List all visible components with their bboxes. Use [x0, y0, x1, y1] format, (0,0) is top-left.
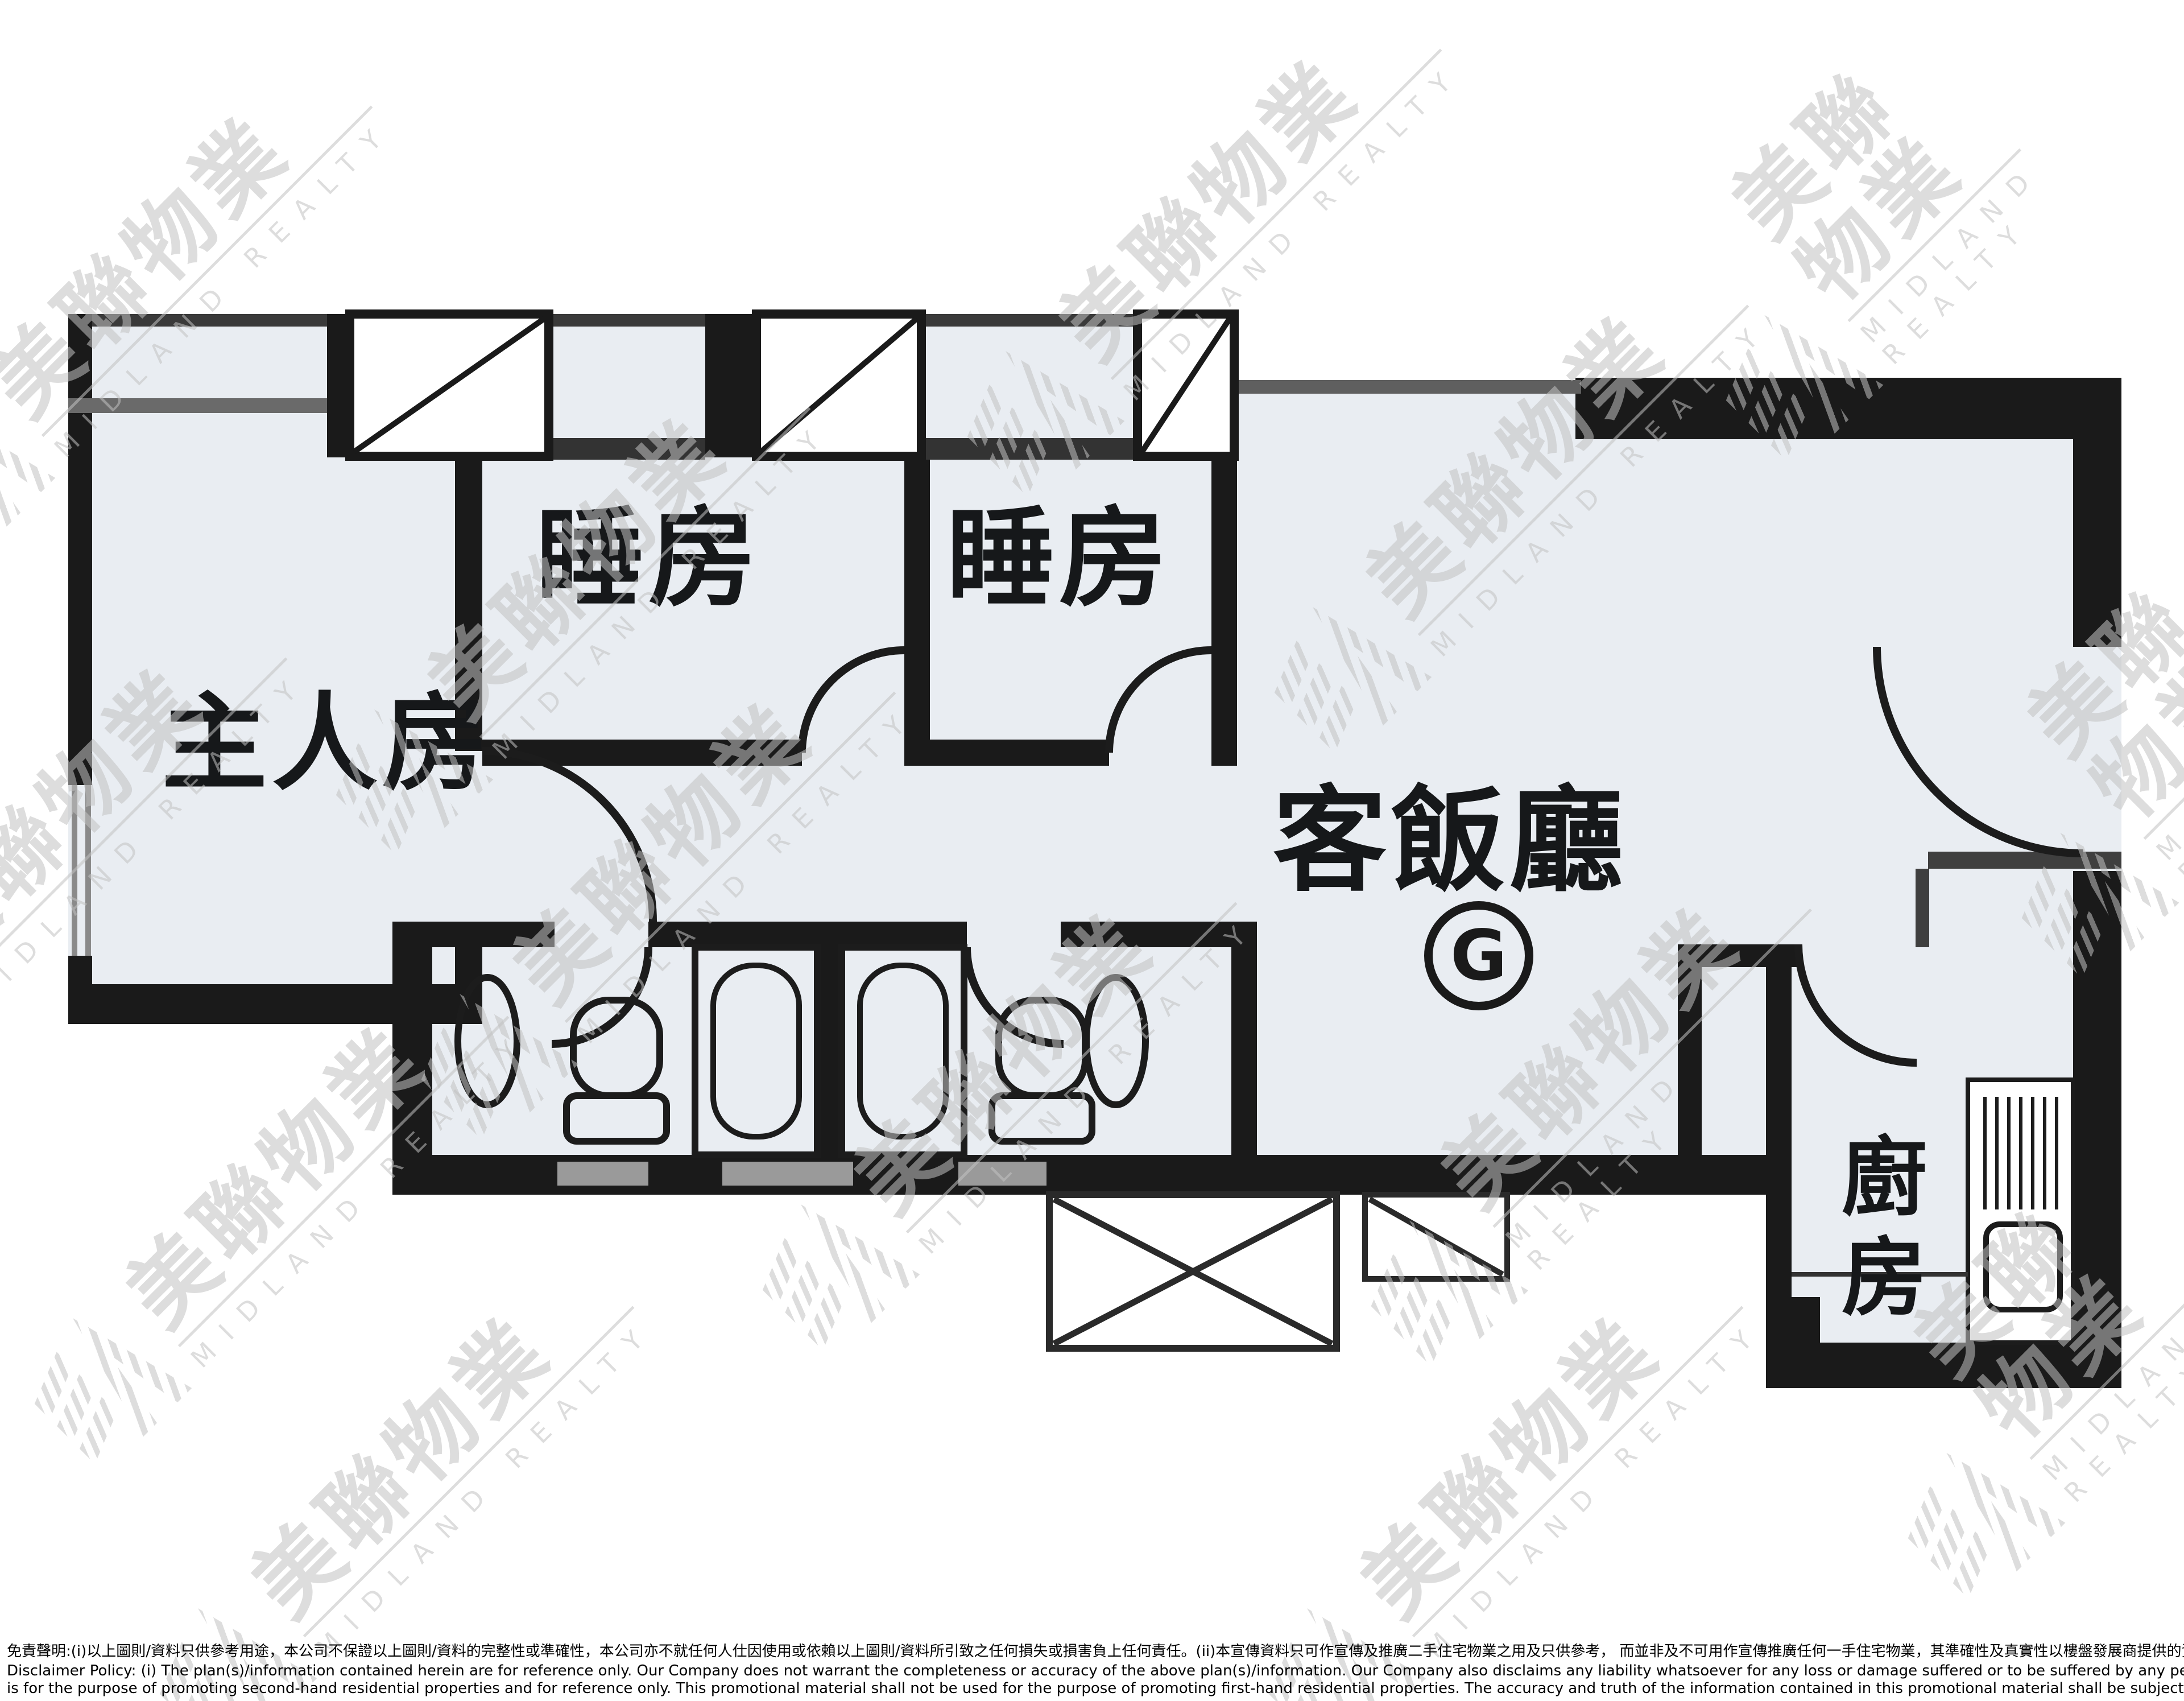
- wall-bath-top-c: [1061, 922, 1257, 947]
- wall-bath-top-b: [648, 922, 967, 947]
- wall-left-upper: [68, 314, 92, 785]
- wall-bath-top-a: [392, 922, 555, 947]
- wall-kitchen-door-stub: [1916, 869, 1929, 947]
- wall-bed2-bottom: [930, 740, 1109, 766]
- kitchen-sink: [1986, 1224, 2060, 1310]
- wall-kitchen-right: [2073, 871, 2121, 1388]
- external-platforms: [1049, 1195, 1507, 1348]
- master-side-window-line-a: [72, 785, 77, 956]
- wall-bath-right: [1231, 922, 1257, 1195]
- floor-plan-drawing: [0, 0, 2184, 1701]
- unit-marker-circle: G: [1424, 901, 1533, 1010]
- disclaimer-line-english-2: is for the purpose of promoting second-h…: [7, 1681, 2184, 1696]
- label-bedroom-2: 睡房: [946, 471, 1172, 627]
- kitchen-drainboard-hatch: [1985, 1097, 2057, 1209]
- disclaimer-line-chinese: 免責聲明:(i)以上圖則/資料只供參考用途，本公司不保證以上圖則/資料的完整性或…: [7, 1644, 2184, 1659]
- disclaimer-line-english-1: Disclaimer Policy: (i) The plan(s)/infor…: [7, 1663, 2184, 1678]
- wall-right-upper: [2073, 378, 2121, 647]
- label-bedroom-1: 睡房: [536, 471, 761, 627]
- master-side-window-line-b: [85, 785, 91, 956]
- bath-window-c: [958, 1162, 1046, 1186]
- bath-window-b: [722, 1162, 853, 1186]
- wall-entrance-jog: [1928, 852, 2121, 869]
- wall-foyer-partition-v: [1678, 967, 1702, 1172]
- wall-living-top-thin: [1228, 380, 1581, 394]
- bath-window-a: [557, 1162, 648, 1186]
- wall-bed-divider: [904, 457, 930, 766]
- floor-plan-page: 主人房 睡房 睡房 客飯廳 G 廚房 美聯物業MIDLAND REALTY 美聯…: [0, 0, 2184, 1701]
- unit-marker-letter: G: [1450, 915, 1507, 996]
- label-kitchen: 廚房: [1815, 1132, 1939, 1332]
- wall-top-thin: [68, 314, 1228, 327]
- wall-bed2-right: [1211, 457, 1237, 766]
- wall-living-top: [1575, 378, 2121, 439]
- label-master-bedroom: 主人房: [162, 657, 493, 811]
- wall-bath-left: [392, 922, 432, 1195]
- bed1-window-sill: [549, 438, 705, 460]
- wall-kitchen-corner: [1766, 1297, 1820, 1388]
- master-window-sill: [68, 398, 327, 413]
- wall-chunk-mid: [705, 314, 756, 457]
- wall-foyer-partition-h: [1678, 944, 1798, 967]
- bed2-window-sill: [921, 438, 1137, 460]
- label-living-dining: 客飯廳: [1273, 748, 1628, 913]
